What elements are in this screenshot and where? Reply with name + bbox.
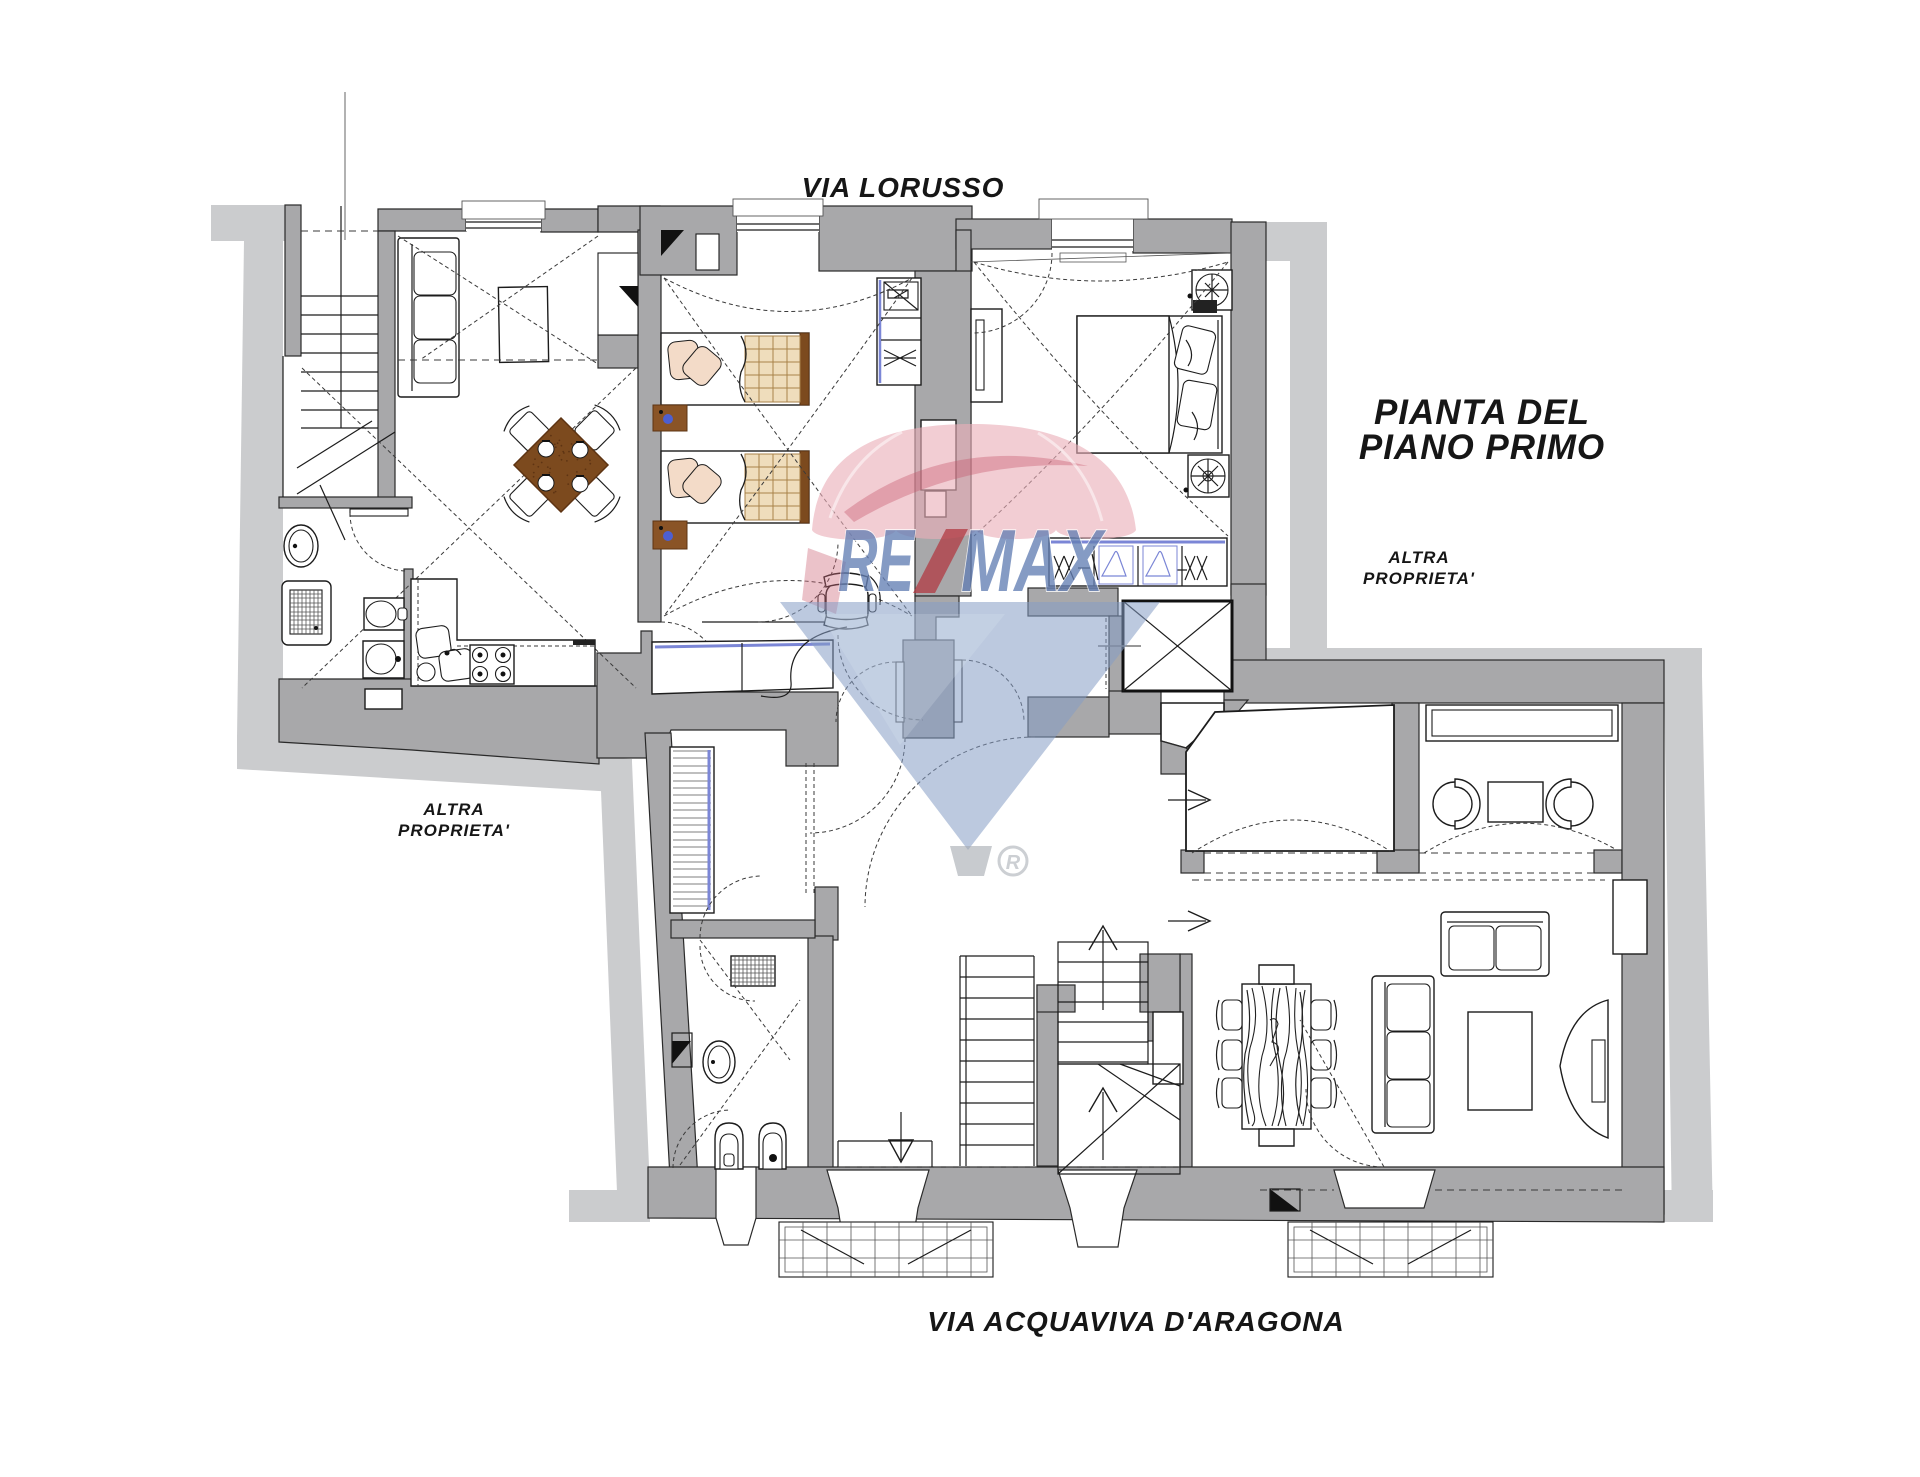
- svg-text:VIA ACQUAVIVA D'ARAGONA: VIA ACQUAVIVA D'ARAGONA: [927, 1306, 1345, 1337]
- svg-text:R: R: [1006, 852, 1021, 874]
- svg-text:PIANTA DEL: PIANTA DEL: [1374, 393, 1590, 432]
- svg-text:PROPRIETA': PROPRIETA': [1363, 569, 1475, 588]
- svg-text:PROPRIETA': PROPRIETA': [398, 821, 510, 840]
- svg-text:ALTRA: ALTRA: [422, 800, 484, 819]
- svg-text:MAX: MAX: [961, 511, 1107, 610]
- svg-text:RE: RE: [838, 511, 915, 610]
- svg-text:ALTRA: ALTRA: [1387, 548, 1449, 567]
- svg-text:VIA LORUSSO: VIA LORUSSO: [802, 172, 1005, 203]
- svg-text:PIANO PRIMO: PIANO PRIMO: [1359, 428, 1605, 467]
